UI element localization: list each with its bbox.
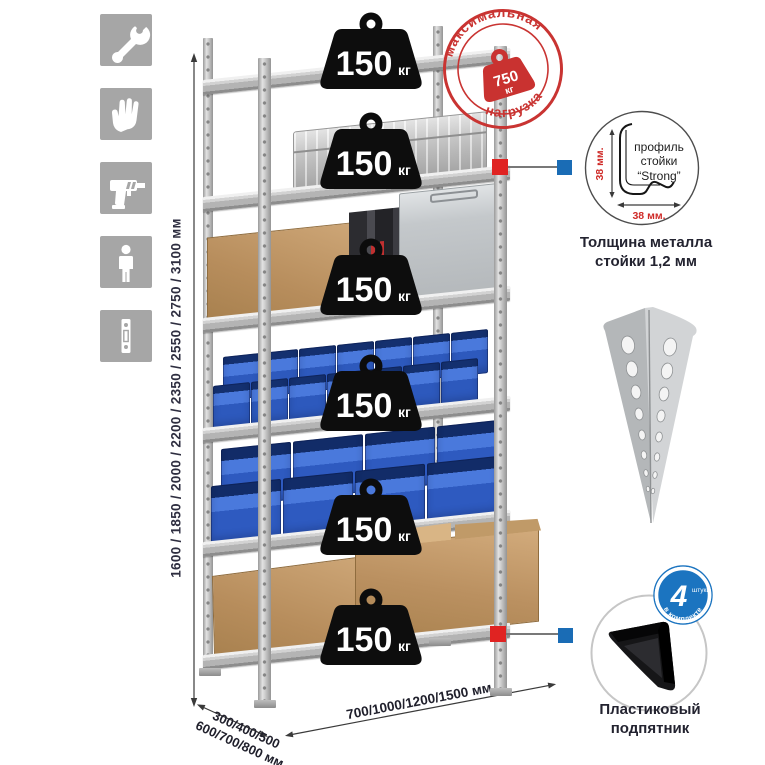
svg-text:профиль: профиль	[634, 140, 684, 154]
foot-caption: Пластиковый подпятник	[588, 700, 712, 738]
svg-text:38 мм.: 38 мм.	[632, 210, 665, 222]
svg-text:“Strong”: “Strong”	[637, 169, 680, 183]
svg-text:150: 150	[336, 45, 393, 83]
callout-line-bottom	[505, 633, 561, 635]
callout-line-top	[505, 166, 561, 168]
svg-text:150: 150	[336, 511, 393, 549]
post-profile-detail: 38 мм. 38 мм. профиль стойки “Strong”	[583, 109, 701, 227]
svg-text:4: 4	[670, 580, 688, 613]
rack-post-front-left	[258, 58, 271, 702]
callout-marker-red-bottom	[490, 626, 506, 642]
callout-marker-red-top	[492, 159, 508, 175]
shelf-load-badge-1: 150 кг	[306, 12, 436, 92]
depth-dimension-label: 300/400/500 600/700/800 мм	[193, 703, 293, 765]
rack-foot	[490, 688, 512, 696]
svg-text:кг: кг	[398, 288, 411, 304]
shelf-load-badge-2: 150 кг	[306, 112, 436, 192]
svg-text:кг: кг	[398, 162, 411, 178]
height-dimension-line	[187, 50, 201, 710]
svg-text:150: 150	[336, 621, 393, 659]
post-profile-icon	[100, 310, 152, 362]
drill-icon	[100, 162, 152, 214]
shelving-rack-infographic: 1600 / 1850 / 2000 / 2200 / 2350 / 2550 …	[0, 0, 765, 765]
svg-text:38 мм.: 38 мм.	[594, 147, 606, 180]
svg-text:штуки: штуки	[692, 587, 710, 594]
svg-text:кг: кг	[398, 528, 411, 544]
svg-text:стойки: стойки	[641, 154, 678, 168]
person-icon	[100, 236, 152, 288]
angle-post-image	[597, 299, 701, 535]
svg-text:150: 150	[336, 387, 393, 425]
shelf-load-badge-3: 150 кг	[306, 238, 436, 318]
shelf-load-badge-4: 150 кг	[306, 354, 436, 434]
callout-marker-blue-bottom	[558, 628, 573, 643]
svg-text:кг: кг	[398, 638, 411, 654]
svg-text:максимальная: максимальная	[431, 0, 548, 62]
svg-text:кг: кг	[398, 62, 411, 78]
rack-post-front-right	[494, 46, 507, 690]
shelf-load-badge-6: 150 кг	[306, 588, 436, 668]
feature-tile-post	[100, 310, 152, 362]
feature-tile-drill	[100, 162, 152, 214]
callout-marker-blue-top	[557, 160, 572, 175]
feature-tile-wrench	[100, 14, 152, 66]
rack-foot	[199, 668, 221, 676]
shelf-load-badge-5: 150 кг	[306, 478, 436, 558]
feature-tile-person	[100, 236, 152, 288]
svg-text:150: 150	[336, 271, 393, 309]
feature-tile-gloves	[100, 88, 152, 140]
included-count-badge: 4 штуки в комплекте	[652, 564, 714, 626]
gloves-icon	[100, 88, 152, 140]
svg-text:кг: кг	[398, 404, 411, 420]
height-dimension-label: 1600 / 1850 / 2000 / 2200 / 2350 / 2550 …	[169, 218, 184, 578]
rack-foot	[254, 700, 276, 708]
svg-text:150: 150	[336, 145, 393, 183]
wrench-icon	[100, 14, 152, 66]
profile-caption: Толщина металла стойки 1,2 мм	[570, 233, 722, 271]
width-dimension-line	[283, 679, 558, 741]
